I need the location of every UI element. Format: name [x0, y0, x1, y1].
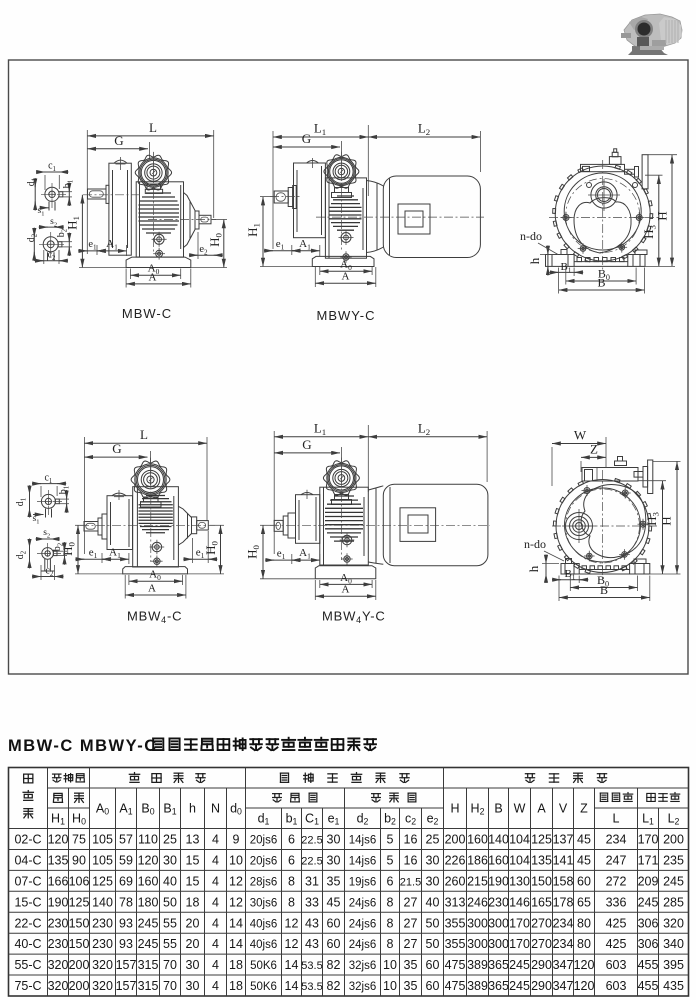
svg-text:30: 30	[186, 979, 200, 993]
svg-text:8: 8	[288, 874, 295, 888]
svg-text:65: 65	[577, 895, 591, 909]
svg-text:07-C: 07-C	[14, 874, 41, 888]
svg-text:30: 30	[327, 833, 341, 847]
svg-text:MBW4Y-C: MBW4Y-C	[322, 609, 386, 626]
svg-text:340: 340	[663, 937, 684, 951]
svg-text:160: 160	[138, 874, 159, 888]
svg-text:H0: H0	[245, 545, 262, 559]
svg-text:70: 70	[163, 958, 177, 972]
svg-text:d1: d1	[258, 812, 270, 827]
svg-text:h: h	[526, 565, 541, 572]
svg-text:A0: A0	[96, 801, 109, 816]
svg-text:20js6: 20js6	[250, 835, 278, 847]
svg-text:c2: c2	[405, 812, 416, 827]
svg-text:455: 455	[638, 958, 659, 972]
svg-text:80: 80	[577, 937, 591, 951]
svg-text:9: 9	[233, 833, 240, 847]
svg-text:180: 180	[138, 895, 159, 909]
svg-text:14: 14	[285, 979, 299, 993]
svg-text:30: 30	[163, 853, 177, 867]
svg-text:A: A	[148, 582, 156, 594]
svg-text:43: 43	[305, 937, 319, 951]
svg-text:12: 12	[229, 874, 243, 888]
svg-text:158: 158	[553, 874, 574, 888]
svg-text:209: 209	[638, 874, 659, 888]
svg-text:A: A	[342, 584, 350, 596]
svg-text:b2: b2	[52, 542, 65, 551]
svg-text:43: 43	[305, 916, 319, 930]
svg-text:H0: H0	[203, 541, 220, 555]
svg-text:14: 14	[229, 916, 243, 930]
svg-text:320: 320	[663, 916, 684, 930]
svg-text:16: 16	[404, 853, 418, 867]
svg-text:55: 55	[163, 916, 177, 930]
svg-text:B: B	[494, 801, 502, 815]
svg-text:4: 4	[212, 853, 219, 867]
svg-text:75-C: 75-C	[14, 979, 41, 993]
svg-text:A: A	[342, 271, 350, 283]
svg-text:6: 6	[387, 874, 394, 888]
svg-text:G: G	[302, 131, 311, 146]
svg-text:475: 475	[445, 979, 466, 993]
svg-text:230: 230	[48, 916, 69, 930]
svg-text:120: 120	[574, 958, 595, 972]
svg-text:57: 57	[119, 833, 133, 847]
svg-text:140: 140	[92, 895, 113, 909]
svg-text:8: 8	[288, 895, 295, 909]
svg-text:G: G	[302, 437, 311, 452]
svg-text:h: h	[189, 801, 196, 815]
svg-text:H2: H2	[471, 801, 485, 816]
svg-text:313: 313	[445, 895, 466, 909]
svg-text:336: 336	[606, 895, 627, 909]
svg-text:W: W	[574, 427, 587, 442]
svg-text:18: 18	[229, 958, 243, 972]
svg-text:69: 69	[119, 874, 133, 888]
svg-text:e1: e1	[276, 238, 285, 252]
svg-text:H1: H1	[65, 216, 82, 230]
svg-text:200: 200	[69, 958, 90, 972]
svg-text:234: 234	[553, 916, 574, 930]
svg-text:178: 178	[553, 895, 574, 909]
svg-text:157: 157	[116, 958, 137, 972]
svg-text:L2: L2	[668, 812, 680, 827]
svg-text:45: 45	[327, 895, 341, 909]
svg-text:247: 247	[606, 853, 627, 867]
svg-text:8: 8	[387, 916, 394, 930]
svg-text:425: 425	[606, 937, 627, 951]
svg-text:347: 347	[553, 979, 574, 993]
svg-text:603: 603	[606, 979, 627, 993]
svg-text:6: 6	[288, 853, 295, 867]
svg-text:93: 93	[119, 937, 133, 951]
svg-text:50: 50	[163, 895, 177, 909]
svg-text:435: 435	[663, 979, 684, 993]
svg-text:166: 166	[48, 874, 69, 888]
svg-text:25: 25	[426, 833, 440, 847]
svg-text:4: 4	[212, 895, 219, 909]
svg-text:320: 320	[92, 979, 113, 993]
svg-text:50: 50	[426, 937, 440, 951]
svg-text:226: 226	[445, 853, 466, 867]
svg-text:10: 10	[229, 853, 243, 867]
svg-text:V: V	[559, 801, 568, 815]
svg-text:10: 10	[383, 958, 397, 972]
svg-text:160: 160	[467, 833, 488, 847]
svg-text:4: 4	[212, 833, 219, 847]
svg-text:300: 300	[488, 916, 509, 930]
svg-text:c2: c2	[48, 250, 56, 263]
svg-text:5: 5	[387, 833, 394, 847]
svg-text:93: 93	[119, 916, 133, 930]
svg-text:200: 200	[663, 833, 684, 847]
svg-text:300: 300	[488, 937, 509, 951]
svg-text:b2: b2	[384, 812, 396, 827]
svg-text:78: 78	[119, 895, 133, 909]
svg-text:165: 165	[531, 895, 552, 909]
svg-text:A1: A1	[299, 238, 311, 252]
svg-text:A1: A1	[106, 238, 118, 252]
svg-text:24js6: 24js6	[349, 939, 377, 951]
svg-text:B0: B0	[141, 801, 154, 816]
svg-text:H0: H0	[72, 812, 86, 827]
svg-text:53.5: 53.5	[301, 960, 322, 972]
svg-text:40: 40	[426, 895, 440, 909]
svg-text:d1: d1	[26, 178, 39, 186]
svg-text:40-C: 40-C	[14, 937, 41, 951]
svg-text:105: 105	[92, 833, 113, 847]
svg-text:150: 150	[69, 937, 90, 951]
svg-text:60: 60	[327, 937, 341, 951]
svg-text:75: 75	[72, 833, 86, 847]
svg-text:A1: A1	[109, 546, 121, 560]
svg-text:200: 200	[445, 833, 466, 847]
svg-text:120: 120	[574, 979, 595, 993]
svg-text:24js6: 24js6	[349, 897, 377, 909]
svg-text:347: 347	[553, 958, 574, 972]
svg-text:B: B	[597, 275, 605, 289]
svg-text:290: 290	[531, 979, 552, 993]
svg-text:27: 27	[404, 916, 418, 930]
svg-text:e1: e1	[328, 812, 340, 827]
svg-text:20: 20	[186, 937, 200, 951]
svg-text:12: 12	[229, 895, 243, 909]
svg-text:60: 60	[577, 874, 591, 888]
svg-text:215: 215	[467, 874, 488, 888]
svg-text:21.5: 21.5	[400, 876, 421, 888]
svg-text:157: 157	[116, 979, 137, 993]
svg-text:MBWY-C: MBWY-C	[317, 308, 376, 323]
svg-text:20js6: 20js6	[250, 855, 278, 867]
svg-text:H: H	[450, 801, 459, 815]
svg-text:50: 50	[426, 916, 440, 930]
svg-text:12: 12	[285, 916, 299, 930]
svg-text:e2: e2	[427, 812, 439, 827]
svg-text:s2: s2	[43, 528, 50, 540]
svg-text:H3: H3	[641, 225, 658, 239]
svg-text:30js6: 30js6	[250, 897, 278, 909]
svg-text:15-C: 15-C	[14, 895, 41, 909]
svg-text:24js6: 24js6	[349, 918, 377, 930]
svg-text:14js6: 14js6	[349, 835, 377, 847]
svg-text:245: 245	[138, 916, 159, 930]
svg-text:170: 170	[509, 937, 530, 951]
svg-text:320: 320	[92, 958, 113, 972]
svg-text:290: 290	[531, 958, 552, 972]
svg-text:35: 35	[404, 958, 418, 972]
svg-text:320: 320	[48, 979, 69, 993]
svg-text:e1: e1	[277, 547, 286, 561]
svg-text:260: 260	[445, 874, 466, 888]
svg-text:H1: H1	[51, 812, 65, 827]
svg-text:50K6: 50K6	[250, 960, 277, 972]
svg-text:35: 35	[327, 874, 341, 888]
svg-text:C1: C1	[305, 812, 319, 827]
svg-text:32js6: 32js6	[349, 960, 377, 972]
svg-text:60: 60	[426, 979, 440, 993]
svg-text:160: 160	[488, 853, 509, 867]
svg-text:14js6: 14js6	[349, 855, 377, 867]
svg-text:L2: L2	[418, 121, 430, 138]
svg-text:300: 300	[467, 937, 488, 951]
svg-text:245: 245	[663, 874, 684, 888]
svg-text:H1: H1	[245, 223, 262, 237]
svg-text:300: 300	[467, 916, 488, 930]
svg-text:230: 230	[92, 937, 113, 951]
svg-text:320: 320	[48, 958, 69, 972]
svg-text:d2: d2	[15, 550, 28, 559]
svg-text:106: 106	[69, 874, 90, 888]
svg-text:30: 30	[426, 853, 440, 867]
svg-text:L1: L1	[314, 121, 326, 138]
svg-text:n-do: n-do	[520, 229, 542, 243]
svg-text:30: 30	[426, 874, 440, 888]
svg-text:MBW-C: MBW-C	[122, 306, 172, 321]
svg-text:35: 35	[404, 979, 418, 993]
svg-text:137: 137	[553, 833, 574, 847]
svg-text:234: 234	[553, 937, 574, 951]
svg-text:MBW4-C: MBW4-C	[127, 609, 182, 626]
svg-text:4: 4	[212, 916, 219, 930]
svg-text:270: 270	[531, 916, 552, 930]
svg-text:5: 5	[387, 853, 394, 867]
svg-text:355: 355	[445, 937, 466, 951]
svg-text:120: 120	[48, 833, 69, 847]
svg-text:130: 130	[509, 874, 530, 888]
svg-text:G: G	[112, 441, 121, 456]
svg-text:70: 70	[163, 979, 177, 993]
svg-text:110: 110	[138, 833, 158, 847]
svg-text:306: 306	[638, 916, 659, 930]
svg-text:c2: c2	[45, 566, 53, 579]
svg-text:12: 12	[285, 937, 299, 951]
svg-text:b2: b2	[56, 228, 69, 237]
svg-text:4: 4	[212, 937, 219, 951]
svg-text:389: 389	[467, 979, 488, 993]
svg-text:e1: e1	[88, 239, 97, 252]
svg-text:53.5: 53.5	[301, 981, 322, 993]
svg-text:30: 30	[186, 958, 200, 972]
svg-text:141: 141	[553, 853, 574, 867]
svg-text:8: 8	[387, 937, 394, 951]
svg-text:230: 230	[48, 937, 69, 951]
svg-text:135: 135	[531, 853, 552, 867]
svg-text:55-C: 55-C	[14, 958, 41, 972]
svg-text:200: 200	[69, 979, 90, 993]
svg-text:G: G	[114, 133, 123, 148]
svg-text:60: 60	[426, 958, 440, 972]
svg-text:30: 30	[327, 853, 341, 867]
svg-text:389: 389	[467, 958, 488, 972]
svg-text:A0: A0	[149, 569, 161, 583]
svg-text:455: 455	[638, 979, 659, 993]
svg-text:b1: b1	[58, 486, 71, 494]
svg-text:L2: L2	[418, 421, 430, 438]
svg-text:22-C: 22-C	[14, 916, 41, 930]
svg-text:150: 150	[531, 874, 552, 888]
svg-text:245: 245	[138, 937, 159, 951]
svg-text:A1: A1	[119, 801, 132, 816]
svg-text:425: 425	[606, 916, 627, 930]
svg-text:18: 18	[186, 895, 200, 909]
svg-text:190: 190	[488, 874, 509, 888]
svg-text:15: 15	[186, 853, 200, 867]
svg-text:A1: A1	[299, 547, 311, 561]
svg-text:MBW-C MBWY-C: MBW-C MBWY-C	[8, 737, 158, 755]
svg-text:146: 146	[509, 895, 530, 909]
svg-text:475: 475	[445, 958, 466, 972]
svg-text:e1: e1	[89, 547, 98, 561]
svg-text:234: 234	[606, 833, 627, 847]
svg-text:b1: b1	[62, 180, 75, 188]
svg-text:50K6: 50K6	[250, 981, 277, 993]
svg-text:L: L	[140, 427, 148, 442]
svg-text:L1: L1	[314, 421, 326, 438]
svg-text:125: 125	[92, 874, 113, 888]
svg-text:18: 18	[229, 979, 243, 993]
svg-text:104: 104	[509, 853, 530, 867]
svg-text:140: 140	[488, 833, 509, 847]
svg-text:Z: Z	[590, 441, 598, 456]
svg-text:120: 120	[138, 853, 159, 867]
svg-text:245: 245	[638, 895, 659, 909]
svg-text:186: 186	[467, 853, 488, 867]
svg-text:150: 150	[69, 916, 90, 930]
svg-text:04-C: 04-C	[14, 853, 41, 867]
svg-text:19js6: 19js6	[349, 876, 377, 888]
svg-text:230: 230	[488, 895, 509, 909]
svg-text:d2: d2	[357, 812, 369, 827]
svg-text:A: A	[149, 271, 157, 283]
svg-text:315: 315	[138, 979, 159, 993]
svg-text:59: 59	[119, 853, 133, 867]
svg-text:H: H	[659, 516, 674, 525]
svg-text:L: L	[613, 812, 620, 826]
svg-text:235: 235	[663, 853, 684, 867]
svg-text:40: 40	[163, 874, 177, 888]
svg-text:190: 190	[48, 895, 69, 909]
svg-text:80: 80	[577, 916, 591, 930]
svg-text:s1: s1	[33, 514, 40, 526]
svg-text:B: B	[600, 583, 608, 597]
svg-text:33: 33	[305, 895, 319, 909]
svg-text:H0: H0	[207, 233, 224, 247]
svg-text:306: 306	[638, 937, 659, 951]
svg-text:32js6: 32js6	[349, 981, 377, 993]
svg-text:22.5: 22.5	[301, 855, 322, 867]
svg-text:105: 105	[92, 853, 113, 867]
svg-text:135: 135	[48, 853, 69, 867]
svg-text:27: 27	[404, 895, 418, 909]
svg-text:230: 230	[92, 916, 113, 930]
svg-text:28js6: 28js6	[250, 876, 278, 888]
svg-text:8: 8	[387, 895, 394, 909]
svg-text:c1: c1	[48, 161, 56, 174]
svg-text:82: 82	[327, 979, 341, 993]
svg-text:4: 4	[212, 958, 219, 972]
svg-text:125: 125	[531, 833, 552, 847]
svg-text:365: 365	[488, 958, 509, 972]
svg-text:90: 90	[72, 853, 86, 867]
svg-text:365: 365	[488, 979, 509, 993]
svg-text:15: 15	[186, 874, 200, 888]
svg-text:Z: Z	[580, 801, 588, 815]
svg-text:27: 27	[404, 937, 418, 951]
svg-text:395: 395	[663, 958, 684, 972]
svg-text:d1: d1	[15, 498, 28, 506]
svg-text:L1: L1	[642, 812, 654, 827]
svg-text:60: 60	[327, 916, 341, 930]
svg-text:170: 170	[509, 916, 530, 930]
svg-text:n-do: n-do	[524, 537, 546, 551]
svg-text:14: 14	[229, 937, 243, 951]
svg-text:6: 6	[288, 833, 295, 847]
svg-text:B1: B1	[163, 801, 176, 816]
svg-text:20: 20	[186, 916, 200, 930]
svg-text:d2: d2	[26, 233, 39, 242]
svg-text:104: 104	[509, 833, 530, 847]
svg-text:55: 55	[163, 937, 177, 951]
svg-text:245: 245	[509, 958, 530, 972]
svg-text:4: 4	[212, 979, 219, 993]
svg-text:A: A	[537, 801, 546, 815]
svg-text:16: 16	[404, 833, 418, 847]
svg-text:13: 13	[186, 833, 200, 847]
svg-text:14: 14	[285, 958, 299, 972]
svg-text:10: 10	[383, 979, 397, 993]
svg-text:170: 170	[638, 833, 659, 847]
svg-text:c1: c1	[44, 473, 52, 486]
svg-text:45: 45	[577, 853, 591, 867]
svg-text:285: 285	[663, 895, 684, 909]
svg-text:4: 4	[212, 874, 219, 888]
svg-text:40js6: 40js6	[250, 918, 278, 930]
svg-text:02-C: 02-C	[14, 833, 41, 847]
svg-text:N: N	[211, 801, 220, 815]
svg-text:315: 315	[138, 958, 159, 972]
svg-text:82: 82	[327, 958, 341, 972]
svg-text:H: H	[655, 211, 670, 220]
svg-text:L: L	[149, 120, 157, 135]
svg-text:355: 355	[445, 916, 466, 930]
svg-text:22.5: 22.5	[301, 835, 322, 847]
svg-text:272: 272	[606, 874, 627, 888]
svg-text:25: 25	[163, 833, 177, 847]
svg-text:603: 603	[606, 958, 627, 972]
svg-text:171: 171	[638, 853, 659, 867]
svg-text:31: 31	[305, 874, 319, 888]
svg-text:270: 270	[531, 937, 552, 951]
